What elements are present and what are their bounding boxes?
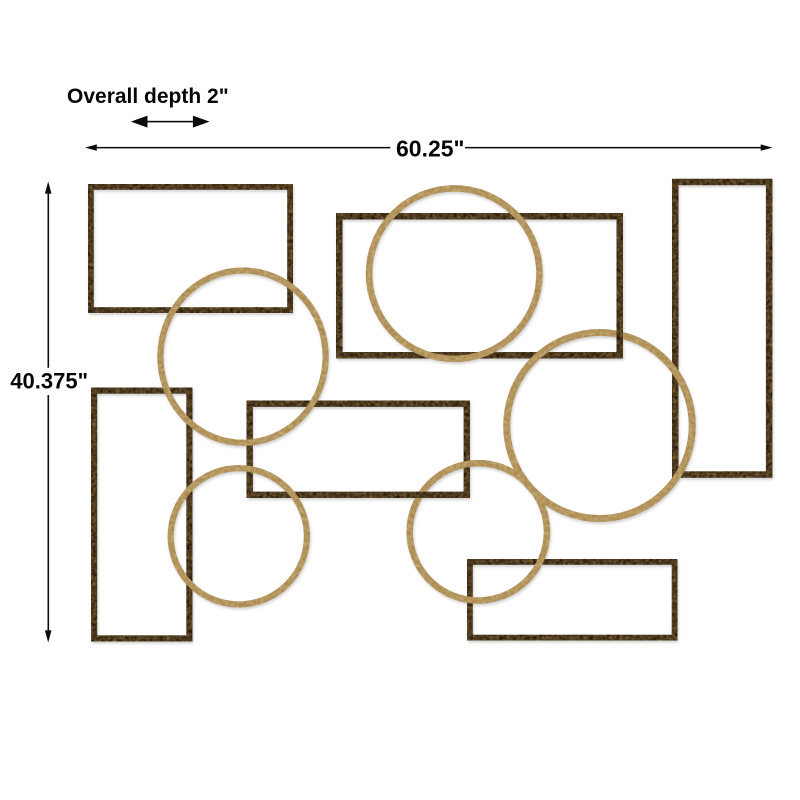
svg-text:40.375": 40.375" bbox=[10, 369, 88, 394]
svg-text:Overall depth 2": Overall depth 2" bbox=[67, 85, 229, 108]
svg-text:60.25": 60.25" bbox=[396, 135, 464, 161]
